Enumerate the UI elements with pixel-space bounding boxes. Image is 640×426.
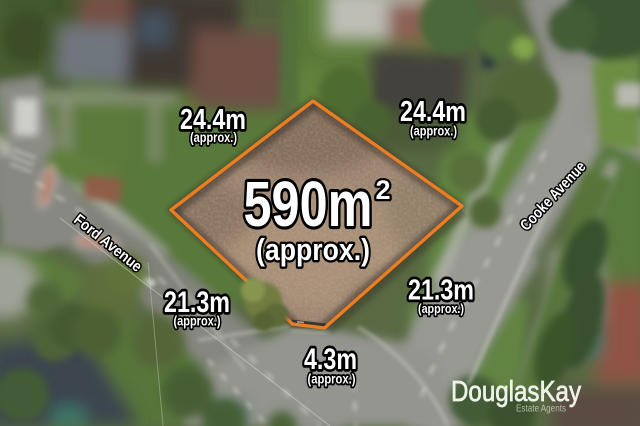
svg-text:Estate Agents: Estate Agents xyxy=(516,403,566,415)
svg-text:(approx.): (approx.) xyxy=(418,301,464,316)
svg-text:590m: 590m xyxy=(244,168,373,240)
svg-text:(approx.): (approx.) xyxy=(190,130,237,145)
svg-text:(approx.): (approx.) xyxy=(308,371,356,387)
svg-text:(approx.): (approx.) xyxy=(174,314,221,329)
svg-text:(approx.): (approx.) xyxy=(410,124,457,139)
svg-text:2: 2 xyxy=(375,175,390,205)
svg-text:(approx.): (approx.) xyxy=(256,232,370,267)
